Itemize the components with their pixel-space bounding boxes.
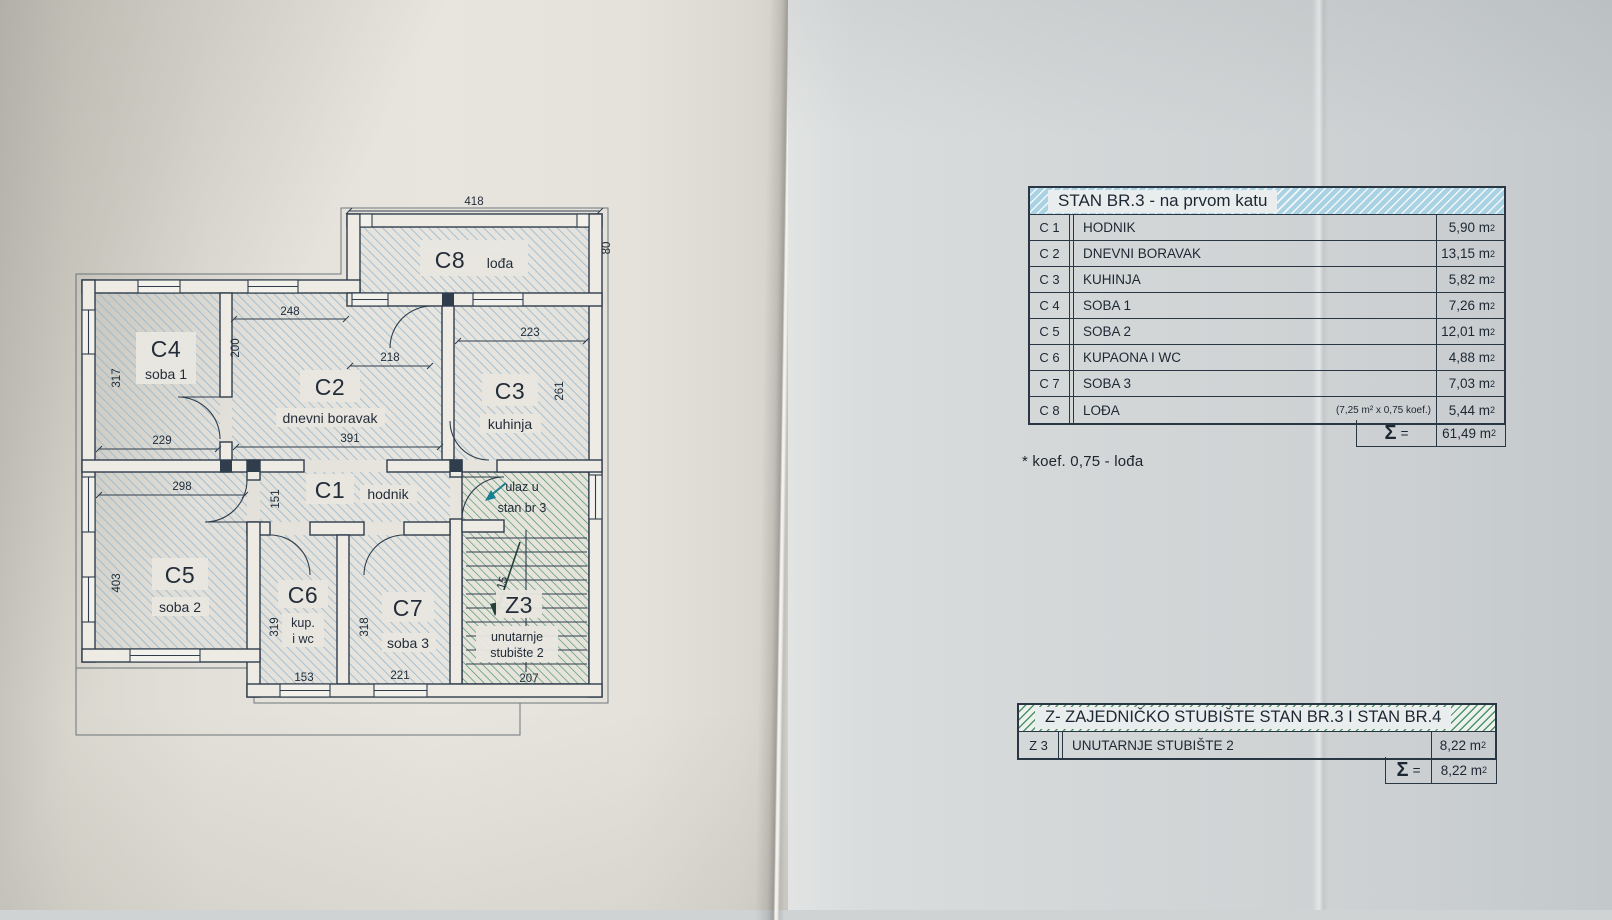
room-label-c1: C1 <box>315 477 345 503</box>
room-label-c4: C4 <box>151 336 181 362</box>
room-name-c2: dnevni boravak <box>283 410 379 426</box>
table-row: C 7 SOBA 3 7,03 m2 <box>1030 371 1504 397</box>
room-label-c6: C6 <box>288 582 318 608</box>
staircase-area-table: Z- ZAJEDNIČKO STUBIŠTE STAN BR.3 I STAN … <box>1017 703 1497 760</box>
svg-text:403: 403 <box>111 573 123 592</box>
apartment-area-table: STAN BR.3 - na prvom katu C 1 HODNIK 5,9… <box>1028 186 1506 425</box>
svg-text:221: 221 <box>390 670 409 682</box>
svg-text:153: 153 <box>294 672 313 684</box>
room-name-c1: hodnik <box>367 486 409 502</box>
staircase-total: 8,22 m2 <box>1432 757 1496 783</box>
apartment-table-sum: Σ= 61,49 m2 <box>1028 420 1506 447</box>
table-row: C 5 SOBA 2 12,01 m2 <box>1030 319 1504 345</box>
room-name-c3: kuhinja <box>488 416 533 432</box>
room-label-c7: C7 <box>393 595 423 621</box>
sigma-symbol: Σ <box>1397 759 1409 782</box>
svg-text:317: 317 <box>111 368 123 387</box>
left-page: 15 C <box>0 0 788 910</box>
table-row: C 1 HODNIK 5,90 m2 <box>1030 215 1504 241</box>
svg-text:318: 318 <box>359 617 371 636</box>
apartment-table-header: STAN BR.3 - na prvom katu <box>1030 188 1504 215</box>
svg-text:151: 151 <box>270 489 282 508</box>
table-row: C 3 KUHINJA 5,82 m2 <box>1030 267 1504 293</box>
room-label-z3: Z3 <box>505 592 533 618</box>
svg-text:391: 391 <box>340 433 359 445</box>
room-name-c4: soba 1 <box>145 366 187 382</box>
room-name-c6-line2: i wc <box>292 632 314 646</box>
svg-text:319: 319 <box>269 617 281 636</box>
entry-label-line2: stan br 3 <box>498 501 547 515</box>
floor-plan: 15 C <box>52 192 614 740</box>
room-label-c3: C3 <box>495 378 525 404</box>
staircase-table-sum: Σ= 8,22 m2 <box>1017 757 1497 784</box>
apartment-table-title: STAN BR.3 - na prvom katu <box>1048 190 1277 213</box>
svg-text:223: 223 <box>520 327 539 339</box>
loggia-coefficient-note: * koef. 0,75 - lođa <box>1022 453 1143 470</box>
apartment-total: 61,49 m2 <box>1437 420 1505 446</box>
room-label-c8: C8 <box>435 247 465 273</box>
table-row: C 4 SOBA 1 7,26 m2 <box>1030 293 1504 319</box>
table-row: C 2 DNEVNI BORAVAK 13,15 m2 <box>1030 241 1504 267</box>
room-name-c7: soba 3 <box>387 635 429 651</box>
staircase-table-header: Z- ZAJEDNIČKO STUBIŠTE STAN BR.3 I STAN … <box>1019 705 1495 732</box>
svg-text:207: 207 <box>519 673 538 685</box>
svg-text:218: 218 <box>380 352 399 364</box>
svg-text:261: 261 <box>554 381 566 400</box>
svg-text:298: 298 <box>172 481 191 493</box>
room-label-c5: C5 <box>165 562 195 588</box>
staircase-table-title: Z- ZAJEDNIČKO STUBIŠTE STAN BR.3 I STAN … <box>1035 707 1451 729</box>
svg-text:248: 248 <box>280 306 299 318</box>
svg-text:80: 80 <box>601 242 613 255</box>
room-name-z3-line2: stubište 2 <box>490 646 544 660</box>
table-row: C 6 KUPAONA I WC 4,88 m2 <box>1030 345 1504 371</box>
room-name-c6-line1: kup. <box>291 616 315 630</box>
table-row: Z 3 UNUTARNJE STUBIŠTE 2 8,22 m2 <box>1019 732 1495 758</box>
room-name-c8: lođa <box>487 255 514 271</box>
room-name-c5: soba 2 <box>159 599 201 615</box>
room-name-z3-line1: unutarnje <box>491 630 543 644</box>
entry-label-line1: ulaz u <box>505 480 538 494</box>
svg-text:200: 200 <box>230 338 242 357</box>
room-label-c2: C2 <box>315 374 345 400</box>
sigma-symbol: Σ <box>1385 422 1397 445</box>
svg-text:229: 229 <box>152 435 171 447</box>
svg-text:418: 418 <box>464 196 483 208</box>
